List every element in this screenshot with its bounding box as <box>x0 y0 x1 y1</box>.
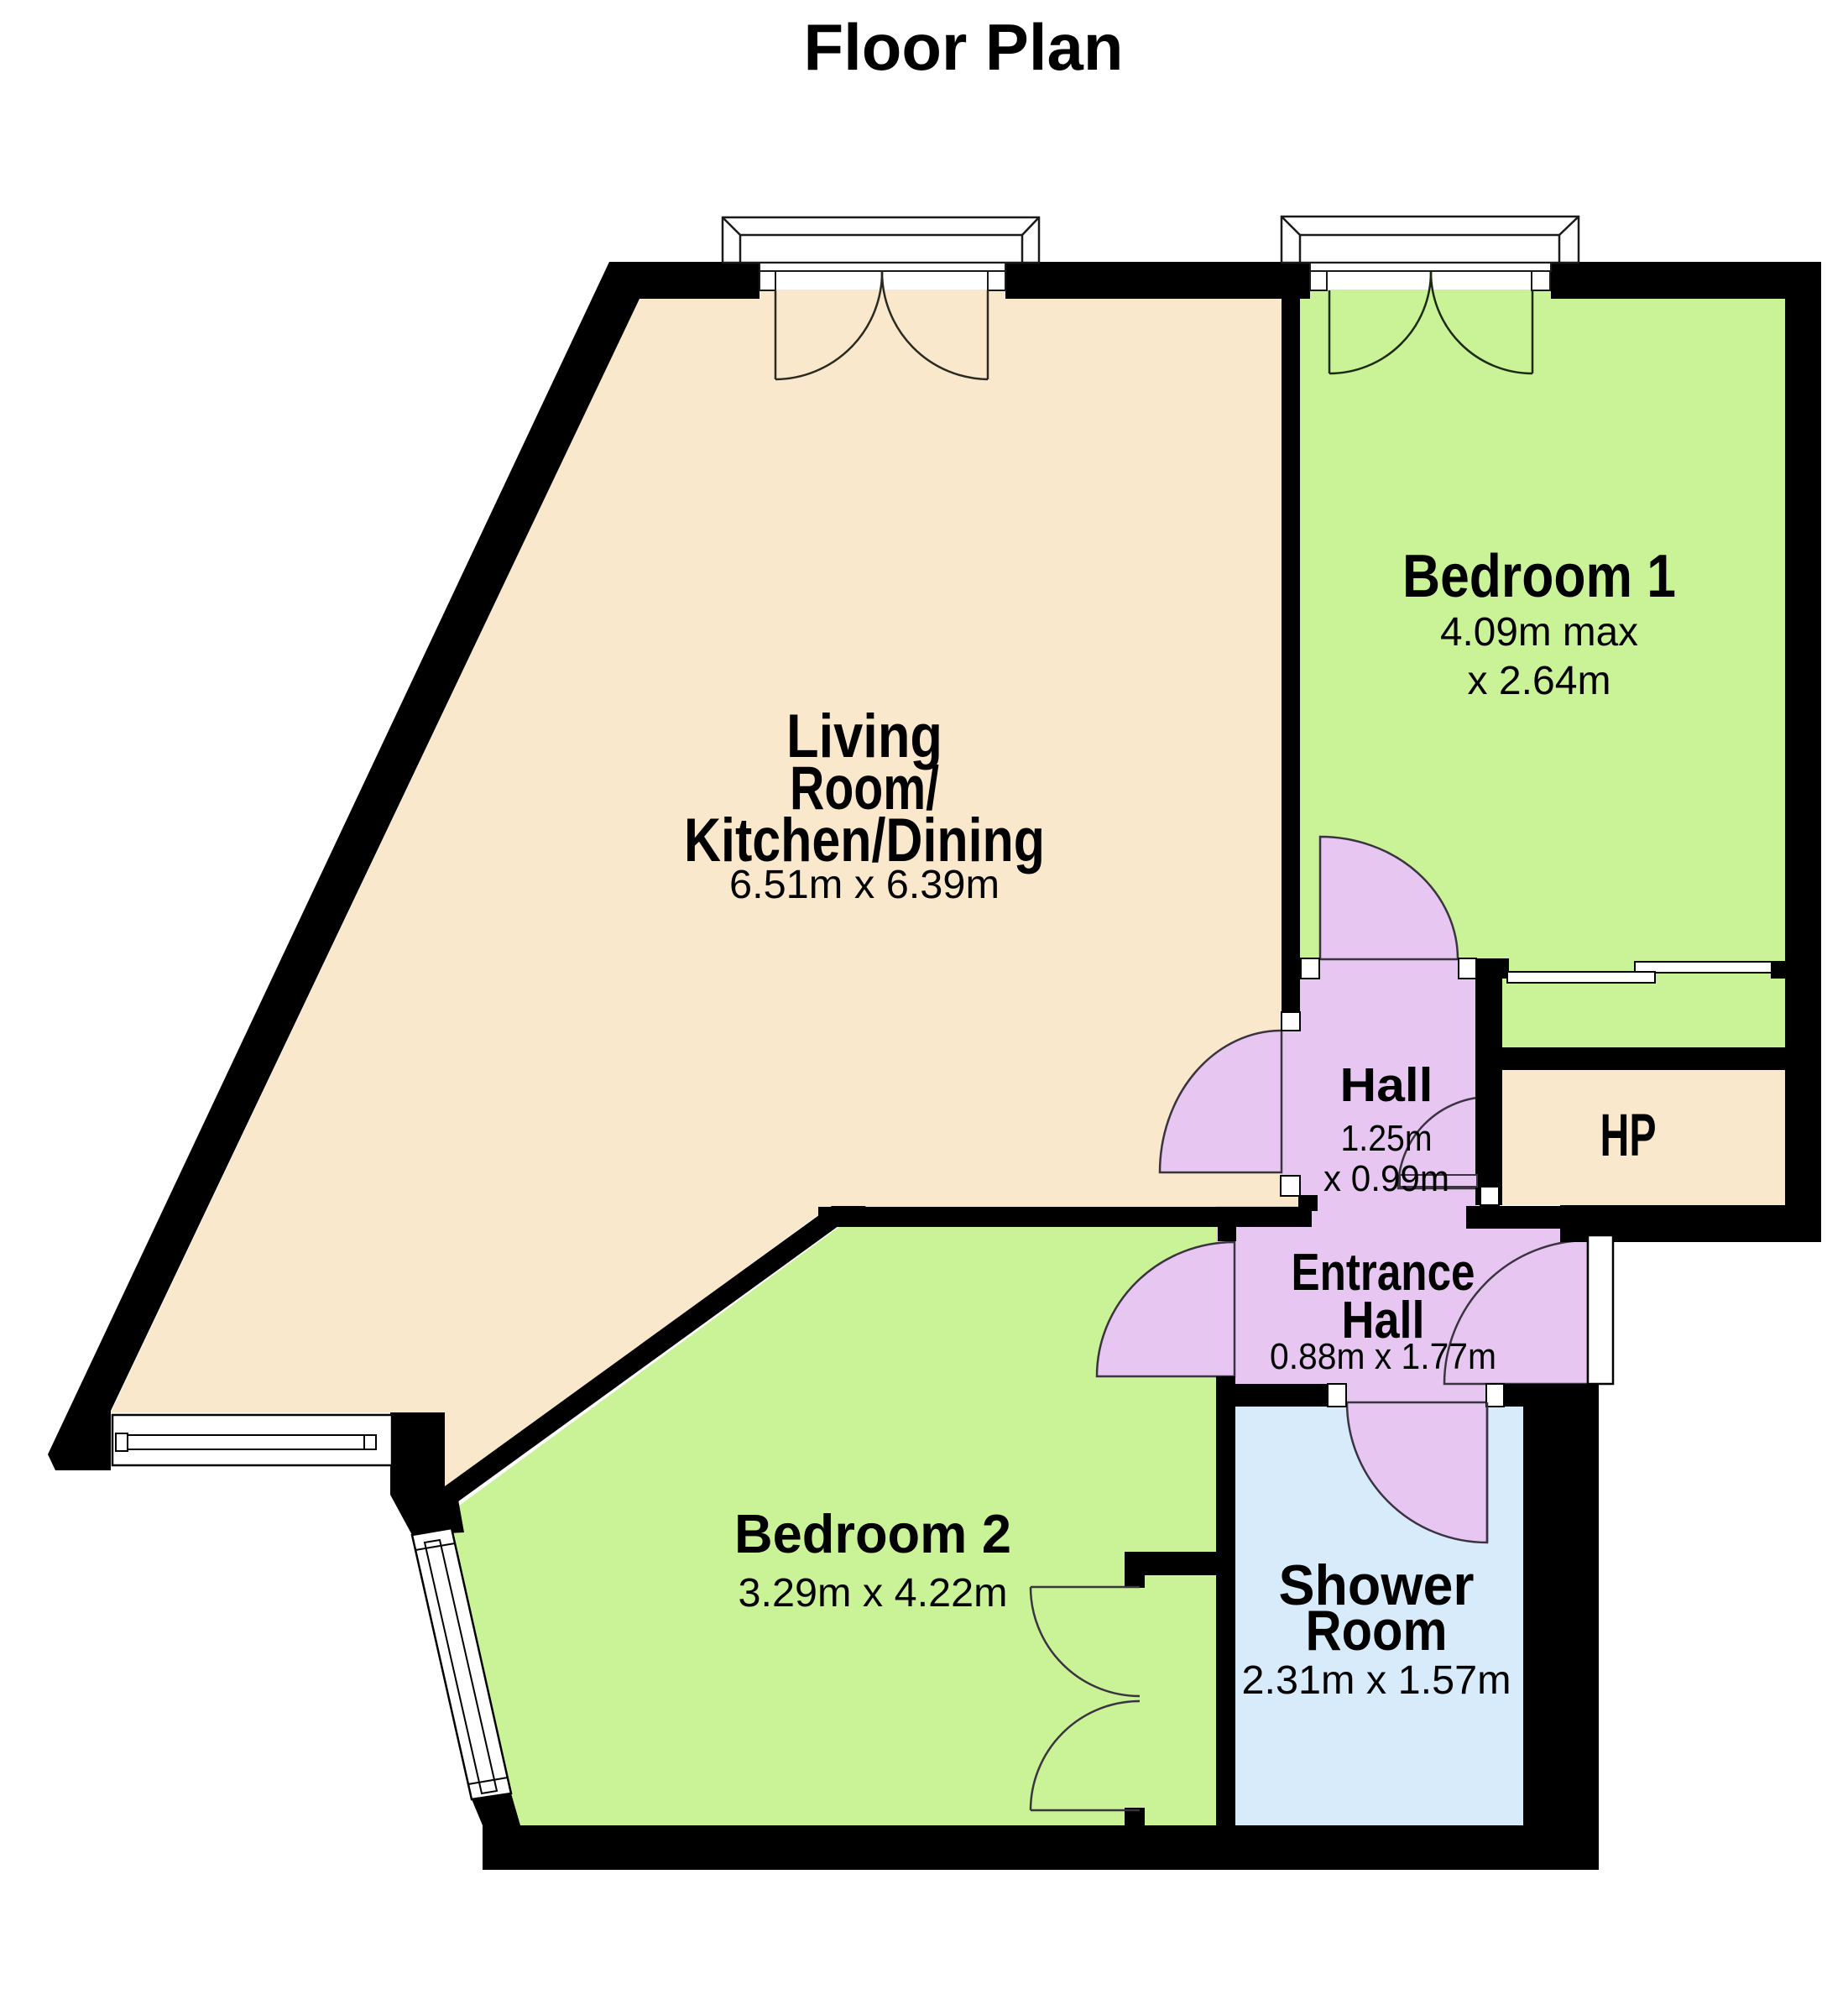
svg-text:Bedroom 2: Bedroom 2 <box>734 1503 1011 1564</box>
svg-text:6.51m x 6.39m: 6.51m x 6.39m <box>729 863 1000 907</box>
svg-text:2.31m x 1.57m: 2.31m x 1.57m <box>1242 1658 1511 1703</box>
svg-text:x 0.99m: x 0.99m <box>1323 1158 1449 1199</box>
svg-text:x 2.64m: x 2.64m <box>1468 659 1611 703</box>
svg-text:4.09m max: 4.09m max <box>1440 610 1638 655</box>
svg-text:Room: Room <box>1306 1599 1448 1663</box>
svg-text:Bedroom 1: Bedroom 1 <box>1402 543 1676 610</box>
svg-text:0.88m x 1.77m: 0.88m x 1.77m <box>1270 1336 1496 1377</box>
svg-text:Hall: Hall <box>1340 1058 1433 1112</box>
svg-text:3.29m x 4.22m: 3.29m x 4.22m <box>739 1571 1008 1616</box>
svg-text:Floor Plan: Floor Plan <box>804 10 1124 84</box>
svg-text:HP: HP <box>1600 1103 1657 1169</box>
svg-text:1.25m: 1.25m <box>1341 1118 1433 1159</box>
